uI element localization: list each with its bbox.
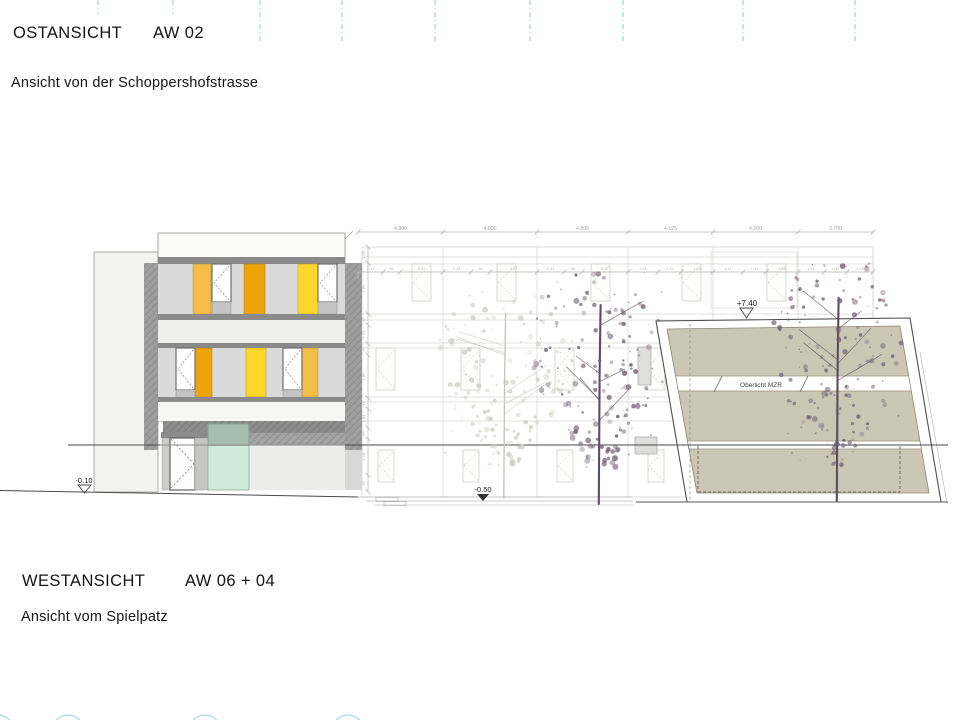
dimension-label: 1.90 [361, 372, 366, 381]
tree-foliage [788, 296, 793, 301]
tree-foliage [610, 308, 612, 310]
tree-foliage [607, 395, 612, 400]
tree-foliage [480, 365, 482, 367]
floor-rail [158, 314, 345, 320]
tree-foliage [539, 387, 544, 392]
tree-foliage [839, 462, 844, 467]
tree-foliage [586, 466, 588, 468]
tree-foliage [793, 305, 795, 307]
site-line [0, 491, 358, 498]
tree-foliage [563, 305, 565, 307]
tree-foliage [852, 312, 857, 317]
level-triangle-filled [477, 494, 489, 501]
window [176, 348, 195, 398]
tree-foliage [560, 352, 562, 354]
tree-foliage [483, 410, 487, 414]
dimension-label: 1.59 [778, 266, 787, 271]
dimension-label: 45 [361, 431, 366, 436]
tree-foliage [607, 383, 610, 386]
tree-foliage [574, 273, 577, 276]
tree-foliage [568, 429, 570, 431]
window [283, 348, 302, 398]
tree-foliage [475, 433, 479, 437]
tree-foliage [514, 436, 518, 440]
tree-foliage [574, 429, 579, 434]
tree-foliage [516, 376, 518, 378]
tree-foliage [608, 419, 613, 424]
tree-foliage [481, 358, 487, 364]
tree-foliage [568, 391, 571, 394]
tree-foliage [804, 369, 808, 373]
tree-foliage [580, 447, 585, 452]
tree-foliage [606, 331, 610, 335]
tree-foliage [572, 381, 578, 387]
tree-foliage [884, 303, 887, 306]
tree-foliage [555, 321, 559, 325]
dimension-label: 1.54 [693, 266, 702, 271]
tree-foliage [512, 300, 516, 304]
tree-foliage [619, 322, 623, 326]
tree-foliage [799, 321, 801, 323]
tree-foliage [554, 307, 557, 310]
tree-foliage [570, 435, 576, 441]
tree-foliage [787, 318, 790, 321]
tree-foliage [563, 402, 568, 407]
tree-foliage [503, 380, 509, 386]
tree-foliage [492, 329, 494, 331]
tree-foliage [588, 443, 593, 448]
tree-foliage [485, 389, 489, 393]
tree-foliage [469, 295, 471, 297]
tree-foliage [596, 371, 598, 373]
tree-foliage [594, 443, 596, 445]
tree-foliage [533, 361, 539, 367]
tree-foliage [855, 338, 857, 340]
facade-panel-amber [193, 264, 211, 314]
tree-foliage [891, 334, 893, 336]
tree-foliage [598, 359, 601, 362]
tree-foliage [463, 463, 466, 466]
tree-foliage [577, 346, 580, 349]
tree-foliage [820, 383, 823, 386]
tree-foliage [486, 317, 489, 320]
tree-foliage [852, 404, 855, 407]
tree-foliage [490, 427, 495, 432]
faint-window [378, 450, 394, 482]
tree-foliage [471, 422, 475, 426]
tree-foliage [785, 347, 787, 349]
tree-foliage [517, 457, 521, 461]
tree-foliage [867, 423, 869, 425]
tree-foliage [815, 432, 817, 434]
tree-foliage [494, 423, 497, 426]
tree-foliage [478, 422, 481, 425]
tree-foliage [594, 328, 598, 332]
tree-foliage [622, 363, 625, 366]
tree-foliage [869, 346, 871, 348]
tree-foliage [524, 420, 529, 425]
tree-foliage [633, 369, 638, 374]
tree-foliage [446, 328, 450, 332]
tree-foliage [490, 374, 494, 378]
tree-foliage [621, 387, 623, 389]
floor-rail [158, 397, 345, 402]
faint-window [648, 450, 664, 482]
tree-foliage [614, 294, 616, 296]
tree-foliage [525, 365, 527, 367]
tree-plan-arc [332, 715, 364, 720]
tree-foliage [628, 302, 630, 304]
tree-foliage [581, 338, 584, 341]
tree-foliage [848, 440, 852, 444]
tree-foliage [549, 387, 551, 389]
facade-panel-orange [244, 264, 265, 314]
tree-foliage [455, 382, 461, 388]
tree-foliage [465, 374, 467, 376]
tree-foliage [864, 266, 870, 272]
tree-foliage [518, 446, 521, 449]
tree-foliage [799, 349, 800, 350]
tree-foliage [506, 451, 511, 456]
tree-foliage [806, 350, 807, 351]
tree-foliage [832, 450, 837, 455]
tree-plan-arc [0, 715, 14, 720]
spandrel-band [158, 320, 345, 343]
tree-foliage [837, 298, 842, 303]
tree-foliage [556, 350, 559, 353]
tree-foliage [521, 398, 526, 403]
tree-foliage [438, 338, 441, 341]
tree-foliage [473, 365, 479, 371]
tree-foliage [490, 402, 493, 405]
corner-tick [345, 231, 353, 239]
door-post [162, 438, 170, 490]
tree-foliage [798, 289, 800, 291]
dimension-label: 4.800 [394, 226, 407, 232]
tree-foliage [510, 461, 516, 467]
tree-foliage [881, 299, 885, 303]
tree-foliage [880, 343, 886, 349]
tree-foliage [610, 449, 615, 454]
tree-foliage [867, 305, 868, 306]
tree-foliage [560, 288, 562, 290]
tree-foliage [657, 319, 660, 322]
tree-foliage [638, 354, 640, 356]
tree-foliage [563, 369, 566, 372]
tree-foliage [586, 455, 589, 458]
entrance-door [170, 438, 195, 490]
tree-foliage [518, 315, 524, 321]
tree-foliage [650, 434, 652, 436]
facade-base-right [345, 450, 362, 490]
tree-foliage [592, 460, 594, 462]
tree-foliage [556, 388, 558, 390]
tree-foliage [808, 398, 813, 403]
tree-foliage [623, 410, 624, 411]
dimension-label: 45 [361, 317, 366, 322]
tree-foliage [779, 328, 782, 331]
tree-foliage [534, 295, 537, 298]
tree-foliage [652, 368, 654, 370]
tree-foliage [510, 441, 513, 444]
tree-foliage [553, 388, 555, 390]
tree-foliage [605, 449, 609, 453]
tree-foliage [591, 272, 596, 277]
tree-foliage [628, 315, 631, 318]
tree-foliage [637, 403, 639, 405]
tree-foliage [496, 384, 498, 386]
tree-foliage [883, 403, 888, 408]
tree-foliage [899, 341, 904, 346]
tree-foliage [477, 382, 479, 384]
tree-foliage [605, 310, 608, 313]
tree-foliage [809, 343, 810, 344]
tree-foliage [570, 359, 573, 362]
tree-foliage [646, 344, 652, 350]
tree-foliage [579, 303, 582, 306]
tree-foliage [540, 338, 541, 339]
dimension-label: 1.11 [751, 266, 759, 271]
tree-foliage [822, 396, 824, 398]
dimension-label: 1.04 [361, 414, 366, 423]
dimension-label: 96 [571, 266, 576, 271]
tree-foliage [476, 415, 479, 418]
tree-foliage [831, 453, 833, 455]
tree-foliage [648, 324, 649, 325]
tree-foliage [822, 297, 825, 300]
tree-foliage [815, 280, 818, 283]
tree-foliage [800, 460, 801, 461]
faint-window [463, 450, 479, 482]
dimension-label: 96 [478, 266, 483, 271]
tree-foliage [619, 368, 623, 372]
tree-foliage [582, 411, 584, 413]
door-lintel [161, 432, 209, 438]
tree-foliage [616, 447, 621, 452]
tree-foliage [638, 302, 642, 306]
tree-foliage [856, 326, 859, 329]
tree-foliage [781, 311, 782, 312]
tree-foliage [543, 374, 549, 380]
tree-foliage [661, 380, 664, 383]
tree-foliage [627, 422, 630, 425]
tree-foliage [507, 358, 512, 363]
tree-foliage [815, 283, 819, 287]
dimension-label: 3.700 [829, 226, 842, 232]
tree-foliage [853, 444, 857, 448]
tree-foliage [858, 277, 861, 280]
tree-foliage [588, 430, 591, 433]
tree-foliage [544, 348, 548, 352]
door-post [195, 438, 208, 490]
tree-foliage [540, 295, 545, 300]
tree-foliage [771, 320, 776, 325]
tree-foliage [881, 399, 885, 403]
dimension-label: 2.27 [510, 266, 519, 271]
dimension-label: 4.800 [484, 226, 497, 232]
tree-foliage [898, 415, 900, 417]
tree-foliage [844, 336, 847, 339]
tree-foliage [556, 379, 560, 383]
tree-foliage [529, 311, 532, 314]
parapet-band [158, 402, 345, 421]
tree-foliage [607, 457, 610, 460]
level-marker-minus-050: -0.50 [474, 485, 491, 494]
tree-foliage [534, 373, 537, 376]
tree-foliage [852, 431, 855, 434]
dimension-label: 4.805 [576, 226, 589, 232]
tree-foliage [859, 333, 862, 336]
dimension-label: 4.200 [749, 226, 762, 232]
tree-foliage [482, 307, 488, 313]
tree-foliage [616, 415, 620, 419]
tree-foliage [444, 451, 447, 454]
tree-foliage [497, 451, 501, 455]
tree-foliage [571, 340, 573, 342]
tree-foliage [540, 320, 542, 322]
tree-foliage [489, 463, 491, 465]
tree-foliage [573, 298, 579, 304]
tree-foliage [842, 289, 845, 292]
dimension-label: 45 [361, 347, 366, 352]
tree-foliage [822, 365, 824, 367]
tree-foliage [647, 397, 649, 399]
tree-foliage [891, 354, 894, 357]
tree-foliage [866, 427, 869, 430]
faint-window [557, 450, 573, 482]
tree-plan-arc [52, 715, 84, 720]
tree-foliage [787, 313, 789, 315]
tree-foliage [851, 438, 854, 441]
tree-foliage [522, 389, 526, 393]
tree-foliage [802, 305, 805, 308]
dimension-label: 1.05 [361, 250, 366, 259]
tree-foliage [871, 286, 874, 289]
tree-foliage [541, 348, 543, 350]
tree-foliage [622, 429, 626, 433]
tree-foliage [556, 325, 558, 327]
tree-foliage [787, 399, 791, 403]
dimension-label: 96 [389, 266, 394, 271]
tree-foliage [508, 389, 512, 393]
tree-foliage [880, 290, 886, 296]
tree-foliage [562, 383, 564, 385]
tree-foliage [803, 364, 808, 369]
facade-panel-orange [195, 348, 212, 397]
tree-foliage [607, 310, 611, 314]
tree-foliage [820, 355, 824, 359]
tree-foliage [868, 262, 871, 265]
tree-foliage [626, 408, 629, 411]
tree-foliage [642, 404, 644, 406]
tree-foliage [865, 340, 870, 345]
floor-rail [158, 343, 345, 348]
tree-foliage [636, 348, 639, 351]
dimension-label: 1.04 [361, 330, 366, 339]
tree-foliage [609, 405, 614, 410]
tree-foliage [845, 385, 847, 387]
tree-foliage [546, 369, 551, 374]
window [212, 264, 231, 314]
tree-foliage [790, 289, 793, 292]
tree-foliage [517, 442, 519, 444]
tree-foliage [529, 430, 532, 433]
tree-foliage [804, 314, 806, 316]
tree-foliage [788, 336, 790, 338]
faint-window [376, 348, 395, 390]
tree-foliage [644, 404, 647, 407]
tree-foliage [846, 266, 847, 267]
tree-foliage [650, 330, 654, 334]
tree-foliage [464, 398, 466, 400]
tree-foliage [596, 271, 601, 276]
tree-foliage [493, 435, 496, 438]
tree-foliage [821, 425, 823, 427]
tree-foliage [791, 452, 793, 454]
tree-foliage [628, 453, 630, 455]
tree-foliage [466, 391, 470, 395]
tree-foliage [860, 432, 865, 437]
tree-foliage [615, 434, 618, 437]
tree-foliage [588, 294, 590, 296]
tree-foliage [605, 412, 610, 417]
tree-foliage [799, 367, 801, 369]
tree-foliage [827, 442, 828, 443]
tree-foliage [623, 415, 625, 417]
tree-foliage [835, 410, 837, 412]
tree-foliage [602, 389, 606, 393]
hatch-overlay [345, 263, 362, 450]
tree-foliage [620, 308, 624, 312]
tree-foliage [585, 438, 591, 444]
tree-foliage [568, 348, 570, 350]
tree-foliage [539, 360, 542, 363]
tree-foliage [800, 351, 802, 353]
tree-foliage [629, 363, 633, 367]
tree-foliage [602, 276, 606, 280]
tree-foliage [802, 420, 805, 423]
dimension-label: 1.11 [832, 266, 840, 271]
tree-foliage [492, 316, 496, 320]
tree-foliage [619, 428, 622, 431]
tree-foliage [634, 293, 637, 296]
tree-foliage [543, 393, 545, 395]
tree-foliage [484, 435, 487, 438]
tree-foliage [818, 423, 824, 429]
tree-foliage [527, 409, 528, 410]
tree-foliage [483, 329, 486, 332]
tree-foliage [834, 394, 836, 396]
tree-foliage [626, 384, 632, 390]
tree-foliage [831, 354, 834, 357]
hatch-overlay [144, 263, 158, 450]
tree-foliage [462, 349, 468, 355]
tree-foliage [529, 425, 533, 429]
tree-foliage [812, 295, 815, 298]
window [318, 264, 337, 314]
tree-foliage [569, 406, 571, 408]
tree-foliage [503, 308, 505, 310]
tree-foliage [596, 438, 599, 441]
tree-foliage [821, 428, 823, 430]
dimension-label: 1.11 [666, 266, 674, 271]
tree-foliage [631, 427, 633, 429]
tree-foliage [528, 439, 532, 443]
ground-floor-wall-light [249, 445, 345, 490]
tree-foliage [875, 320, 879, 324]
tree-foliage [827, 456, 828, 457]
level-marker-plus-740: +7.40 [737, 299, 758, 308]
